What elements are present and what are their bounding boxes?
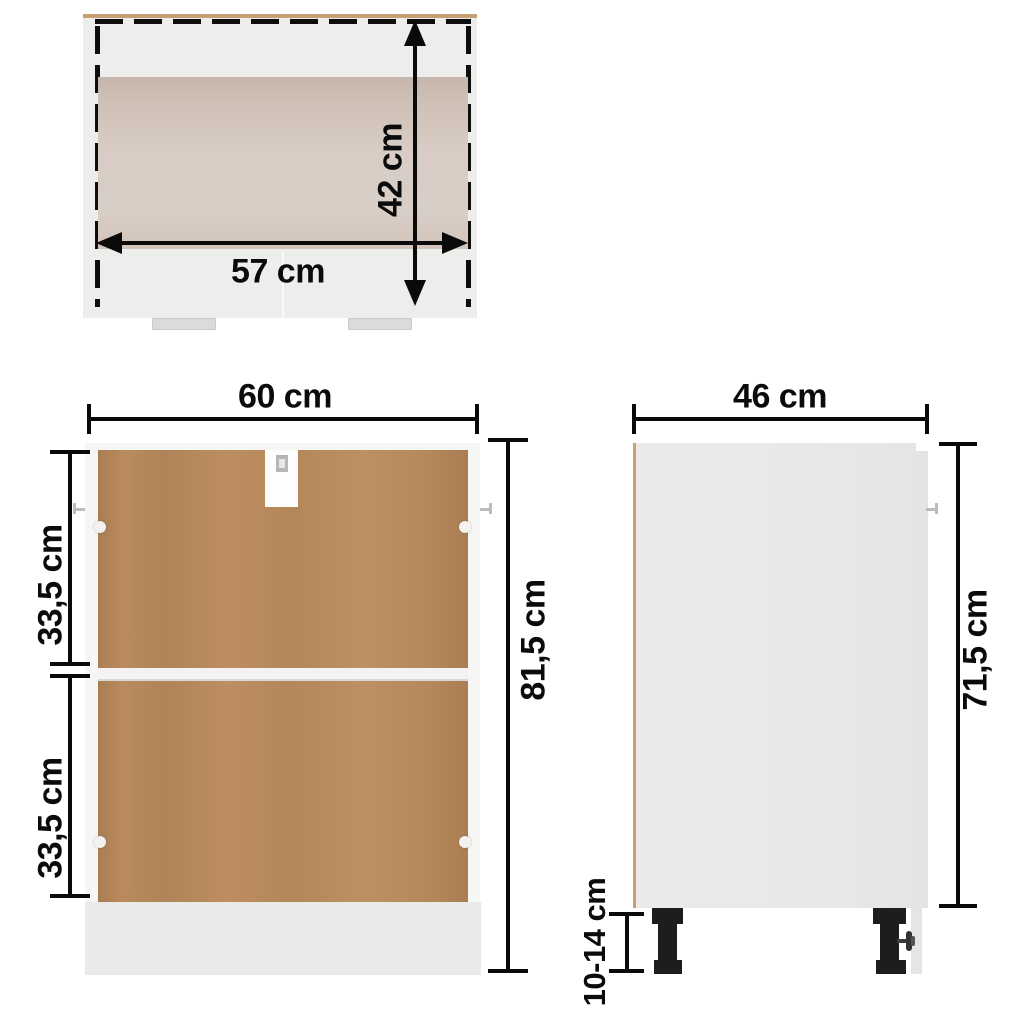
hinge-pin-right-bar (489, 503, 492, 514)
front-height-dim-line (506, 440, 510, 971)
side-height-tick-bottom (939, 904, 977, 908)
hinge-pin-left-stem (76, 508, 85, 511)
upper-section-tick-bottom (50, 662, 90, 666)
leg-right-foot (876, 960, 906, 974)
front-height-tick-bottom (488, 969, 528, 973)
hinge-tab-left (152, 318, 216, 330)
side-view-height-label: 71,5 cm (957, 589, 996, 710)
leg-right-stem (880, 924, 899, 962)
top-width-arrowhead-right (442, 232, 468, 254)
leveling-screw-knob (911, 936, 915, 946)
front-upper-section-label: 33,5 cm (32, 524, 71, 645)
keyhole-slot-inner (279, 459, 285, 468)
cam-lock-dot-bottom-right (459, 836, 471, 848)
leg-left-foot (654, 960, 682, 974)
top-view-wood-edge (83, 14, 477, 18)
lower-section-tick-top (50, 674, 90, 678)
product-dimension-diagram: 57 cm 42 cm 60 cm 33,5 cm (0, 0, 1024, 1024)
leg-height-tick-bottom (609, 969, 644, 973)
plinth (85, 902, 481, 975)
side-wood-edge-left (633, 443, 636, 908)
cam-lock-dot-top-right (459, 521, 471, 533)
side-depth-tick-right (925, 404, 929, 434)
leg-left-flange (652, 908, 683, 924)
lower-section-tick-bottom (50, 894, 90, 898)
side-top-corner-notch (916, 443, 928, 451)
front-width-tick-left (87, 404, 91, 434)
upper-section-tick-top (50, 450, 90, 454)
front-width-tick-right (475, 404, 479, 434)
leg-height-dim-line (625, 914, 629, 971)
cam-lock-dot-bottom-left (94, 836, 106, 848)
leg-height-tick-top (609, 912, 644, 916)
side-view-leg-height-label: 10-14 cm (577, 878, 613, 1007)
front-width-dim-line (87, 417, 479, 421)
top-view-width-label: 57 cm (231, 253, 325, 292)
side-hinge-pin-stem (926, 508, 935, 511)
top-depth-arrow-shaft (413, 44, 417, 282)
cam-lock-dot-top-left (94, 521, 106, 533)
side-height-tick-top (939, 442, 977, 446)
front-view-height-label: 81,5 cm (515, 579, 554, 700)
top-depth-arrowhead-bottom (404, 280, 426, 306)
side-depth-dim-line (632, 417, 929, 421)
shelf-divider (98, 668, 468, 681)
side-view-depth-label: 46 cm (733, 378, 827, 417)
top-view-depth-label: 42 cm (372, 123, 411, 217)
top-width-arrowhead-left (96, 232, 122, 254)
side-view-body (633, 443, 928, 908)
leg-left-stem (658, 924, 677, 962)
front-view-width-label: 60 cm (238, 378, 332, 417)
hinge-pin-right-stem (480, 508, 489, 511)
leg-right-flange (873, 908, 906, 924)
top-depth-arrowhead-top (404, 20, 426, 46)
front-height-tick-top (488, 438, 528, 442)
top-width-arrow-shaft (120, 241, 444, 245)
front-lower-section-label: 33,5 cm (32, 757, 71, 878)
side-depth-tick-left (632, 404, 636, 434)
hinge-tab-right (348, 318, 412, 330)
side-hinge-pin-bar (935, 503, 938, 514)
